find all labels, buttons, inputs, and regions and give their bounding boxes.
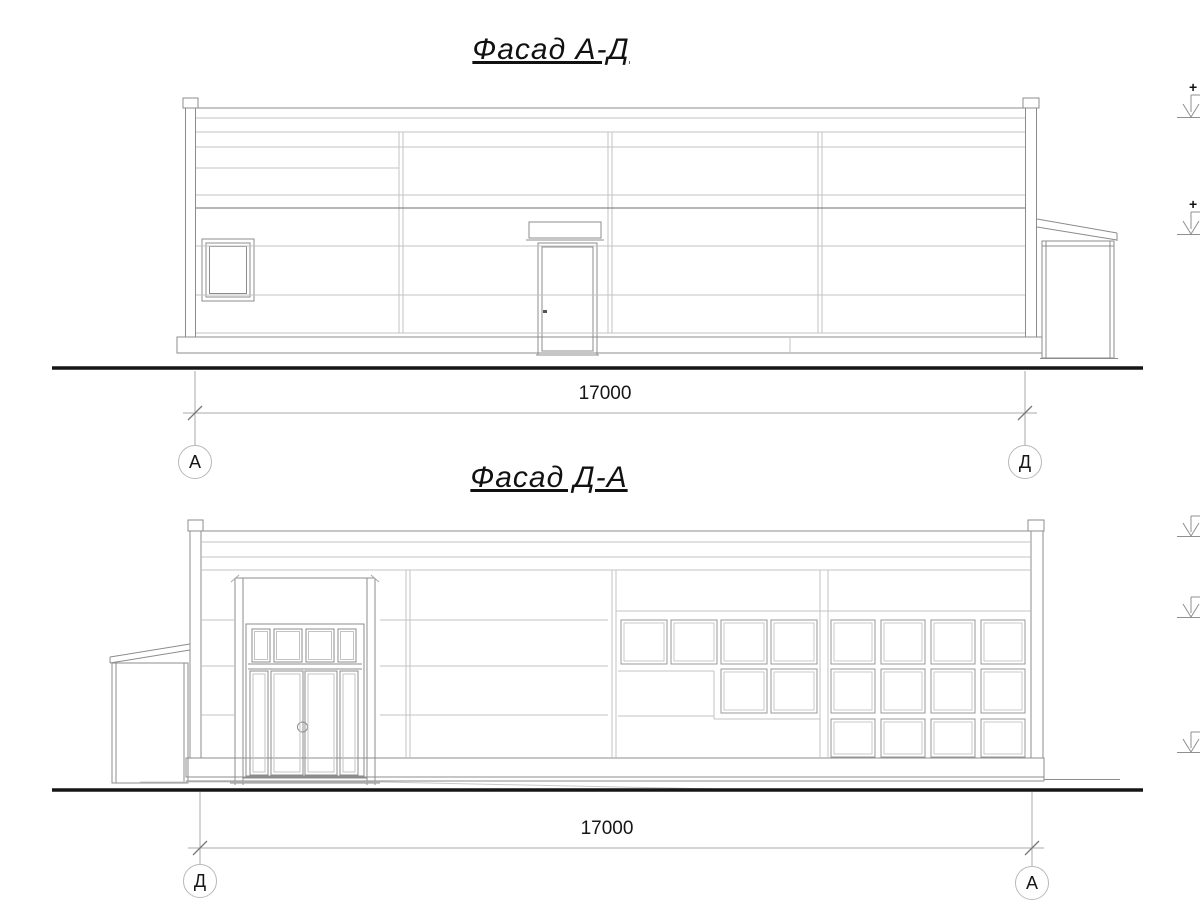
axis-bubble-d-top: Д [1008, 445, 1042, 479]
elevation-mark-icon [1177, 732, 1200, 753]
axis-label: Д [1019, 452, 1031, 473]
elevation-mark-icon [1177, 212, 1200, 235]
facade-da-linework [52, 516, 1200, 866]
dimension-value-top: 17000 [579, 383, 632, 405]
axis-label: А [189, 452, 201, 473]
axis-bubble-d-bottom: Д [183, 864, 217, 898]
axis-label: А [1026, 873, 1038, 894]
facade-da-title: Фасад Д-А [470, 461, 627, 495]
elevation-mark-icon [1177, 516, 1200, 537]
dimension-value-bottom: 17000 [581, 818, 634, 840]
window-band [621, 620, 1025, 757]
door-handle-icon [543, 310, 547, 313]
elevation-plus-sign: + [1189, 196, 1197, 212]
facade-ad-title: Фасад А-Д [472, 33, 629, 67]
axis-bubble-a-top: А [178, 445, 212, 479]
elevation-mark-icon [1177, 597, 1200, 618]
drawing-canvas: Фасад А-Д Фасад Д-А 17000 17000 А Д Д А … [0, 0, 1200, 900]
axis-bubble-a-bottom: А [1015, 866, 1049, 900]
elevation-mark-icon [1177, 95, 1200, 118]
axis-label: Д [194, 871, 206, 892]
elevation-plus-sign: + [1189, 79, 1197, 95]
